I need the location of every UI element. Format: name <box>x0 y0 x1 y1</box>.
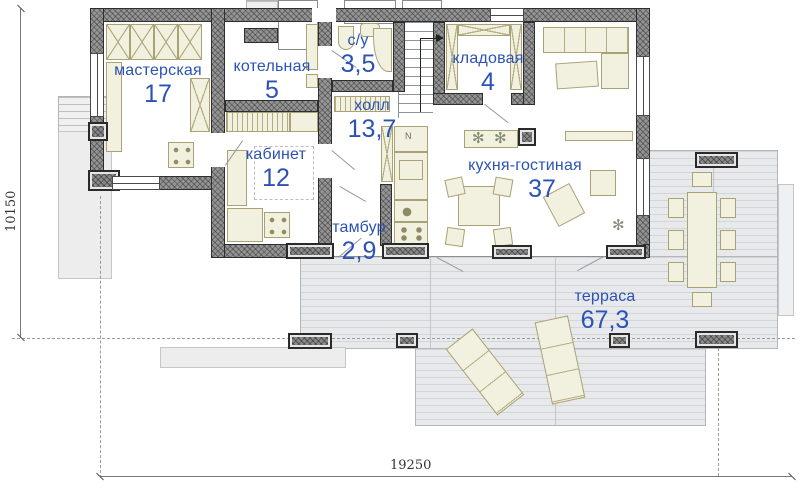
wardrobe <box>130 24 154 60</box>
room-area: 13,7 <box>330 115 414 143</box>
room-area: 4 <box>444 68 532 96</box>
room-label-terrace: терраса 67,3 <box>560 288 650 334</box>
room-name: тамбур <box>318 219 400 237</box>
dimension-tick <box>17 5 25 13</box>
stair-arrow-line-v <box>420 38 421 112</box>
room-name: кухня-гостиная <box>440 157 610 175</box>
room-name: терраса <box>560 288 650 306</box>
wardrobe <box>154 24 178 60</box>
wall-pier-left-1 <box>88 122 108 141</box>
terrace-table <box>687 192 717 288</box>
plant-icon: ✻ <box>472 131 485 146</box>
office-table <box>264 212 290 238</box>
island-end-block <box>518 128 536 146</box>
plant-icon: ✻ <box>494 131 507 146</box>
window-living-right-1 <box>636 56 650 116</box>
axis-line-vertical <box>100 196 101 478</box>
room-label-workshop: мастерская 17 <box>108 62 208 108</box>
terrace-column-4 <box>695 331 738 348</box>
floor-plan: 10150 19250 <box>0 0 800 490</box>
room-label-hall: холл 13,7 <box>330 97 414 143</box>
wall-right <box>636 8 650 258</box>
room-area: 3,5 <box>330 50 386 78</box>
storage-shelf-top <box>458 24 510 36</box>
room-area: 5 <box>224 76 320 104</box>
terrace-chair <box>668 198 684 218</box>
terrace-column-2 <box>396 333 418 348</box>
room-area: 2,9 <box>318 237 400 265</box>
terrace-edge-strip <box>778 184 794 316</box>
work-table <box>168 142 194 168</box>
coffee-table <box>555 61 599 90</box>
terrace-chair <box>668 230 684 250</box>
room-name: холл <box>330 97 414 115</box>
pier-bottom-4 <box>606 245 646 259</box>
plant-icon: ✻ <box>612 218 625 233</box>
living-sofa <box>543 27 629 53</box>
living-sofa-chaise <box>601 53 629 89</box>
wall-top <box>90 8 650 22</box>
terrace-column-5 <box>695 152 738 168</box>
deck-joint <box>430 257 431 348</box>
window-workshop-bay <box>112 176 160 190</box>
door-gap-workshop <box>211 133 225 167</box>
terrace-column-3 <box>609 333 630 348</box>
wardrobe <box>106 24 130 60</box>
room-name: мастерская <box>108 62 208 80</box>
room-name: с/у <box>330 32 386 50</box>
terrace-step <box>160 347 346 368</box>
office-desk <box>227 208 263 242</box>
room-label-office: кабинет 12 <box>230 146 322 192</box>
oven <box>399 160 423 180</box>
window-top-kitchen <box>490 8 524 22</box>
closet-hangers <box>226 112 290 132</box>
wardrobe <box>178 24 202 60</box>
terrace-chair <box>692 292 712 307</box>
closet-shelf <box>290 112 318 132</box>
terrace-chair <box>692 172 712 187</box>
door-leaf-vestibule-top <box>340 186 366 202</box>
stair-arrow-line-h <box>420 38 436 39</box>
dining-chair <box>445 227 465 247</box>
dimension-line-bottom <box>100 476 792 477</box>
window-living-right-2 <box>636 158 650 216</box>
room-area: 67,3 <box>560 306 650 334</box>
wall-porch-pier <box>244 28 278 43</box>
room-area: 17 <box>108 80 208 108</box>
window-workshop-left <box>90 53 104 117</box>
tv-console <box>565 131 633 141</box>
room-label-vestibule: тамбур 2,9 <box>318 219 400 265</box>
room-area: 37 <box>474 175 610 203</box>
room-label-kitchen-living: кухня-гостиная 37 <box>440 157 610 203</box>
room-name: котельная <box>224 58 320 76</box>
axis-line-vertical <box>718 348 719 476</box>
door-leaf-office <box>331 150 355 170</box>
door-leaf-storage <box>484 104 508 123</box>
stair-arrow-head <box>436 34 444 42</box>
pier-bottom-3 <box>492 245 532 259</box>
terrace-chair <box>720 198 736 218</box>
room-label-storage: кладовая 4 <box>444 50 532 96</box>
terrace-chair <box>720 230 736 250</box>
dimension-line-left <box>20 8 21 338</box>
room-label-boiler: котельная 5 <box>224 58 320 104</box>
wall-bath-bottom <box>332 80 393 92</box>
wall-bath-right <box>393 22 405 92</box>
terrace-chair <box>668 262 684 282</box>
terrace-chair <box>720 262 736 282</box>
room-name: кладовая <box>444 50 532 68</box>
dimension-label-bottom: 19250 <box>390 458 431 473</box>
terrace-column-1 <box>288 333 332 349</box>
room-label-bathroom: с/у 3,5 <box>330 32 386 78</box>
dimension-label-left: 10150 <box>4 191 19 232</box>
room-area: 12 <box>230 164 322 192</box>
door-gap-porch <box>312 8 336 22</box>
room-name: кабинет <box>230 146 322 164</box>
